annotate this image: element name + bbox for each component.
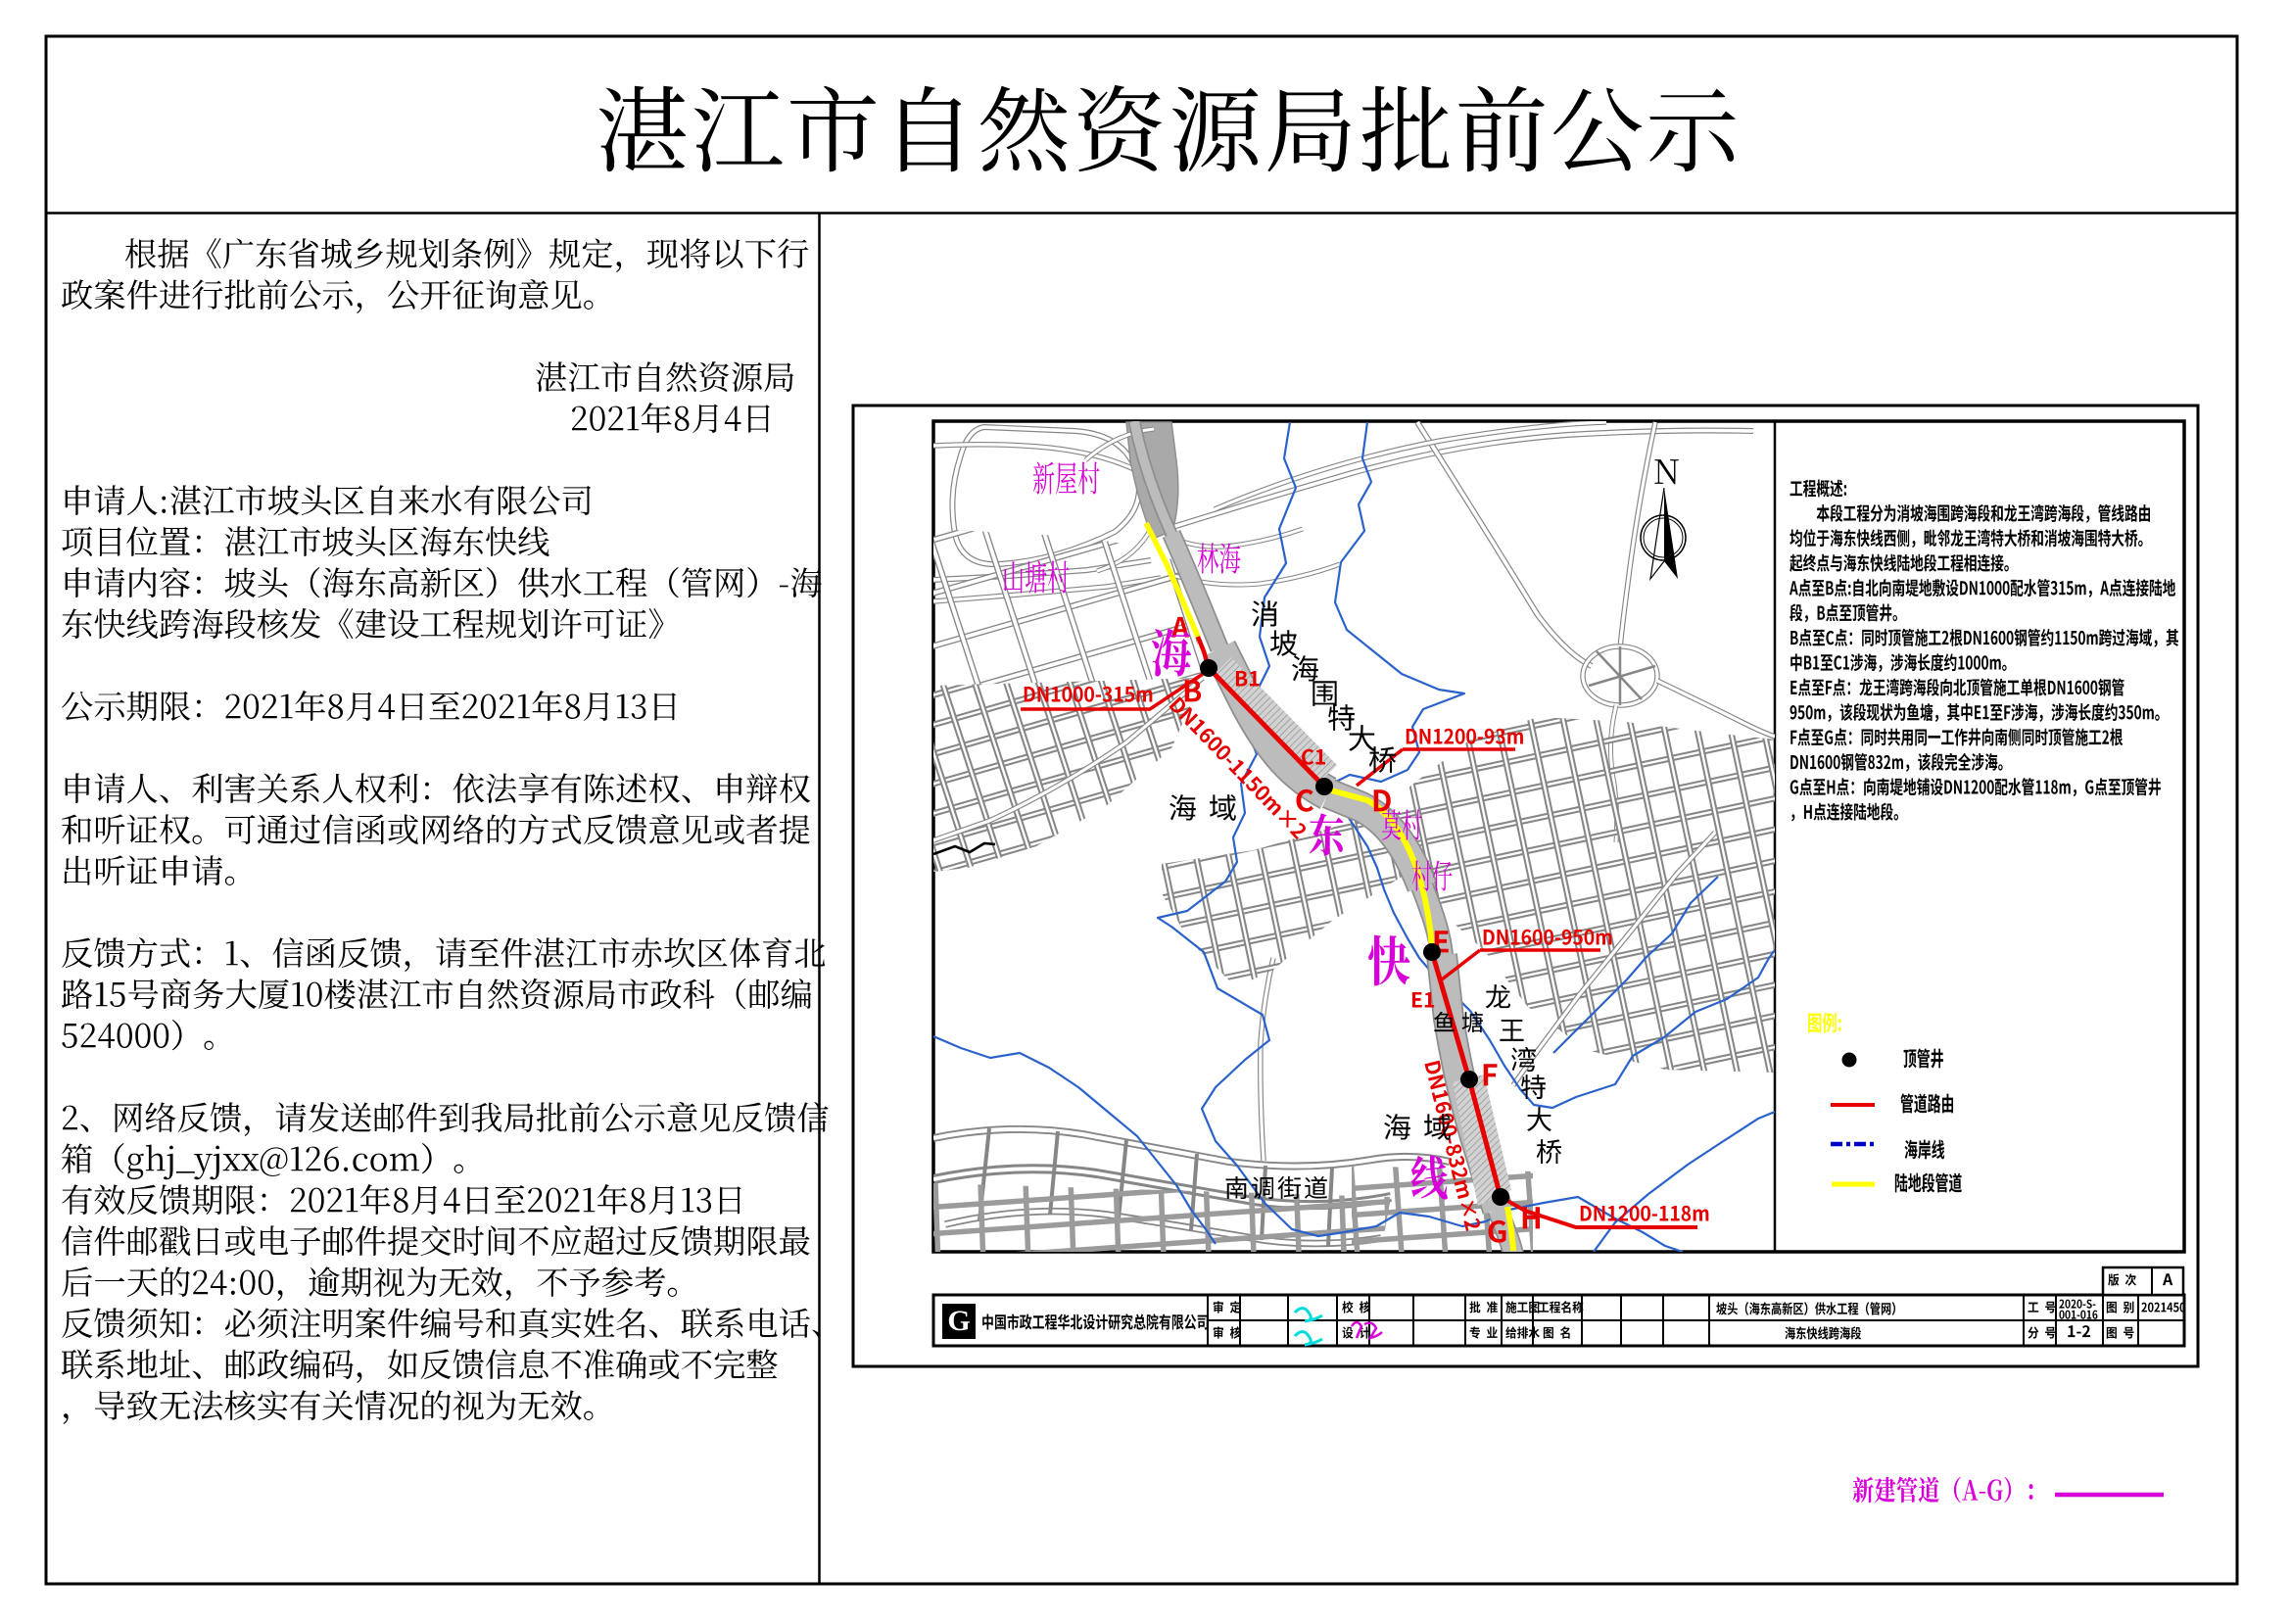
svg-text:G: G xyxy=(947,1305,970,1337)
